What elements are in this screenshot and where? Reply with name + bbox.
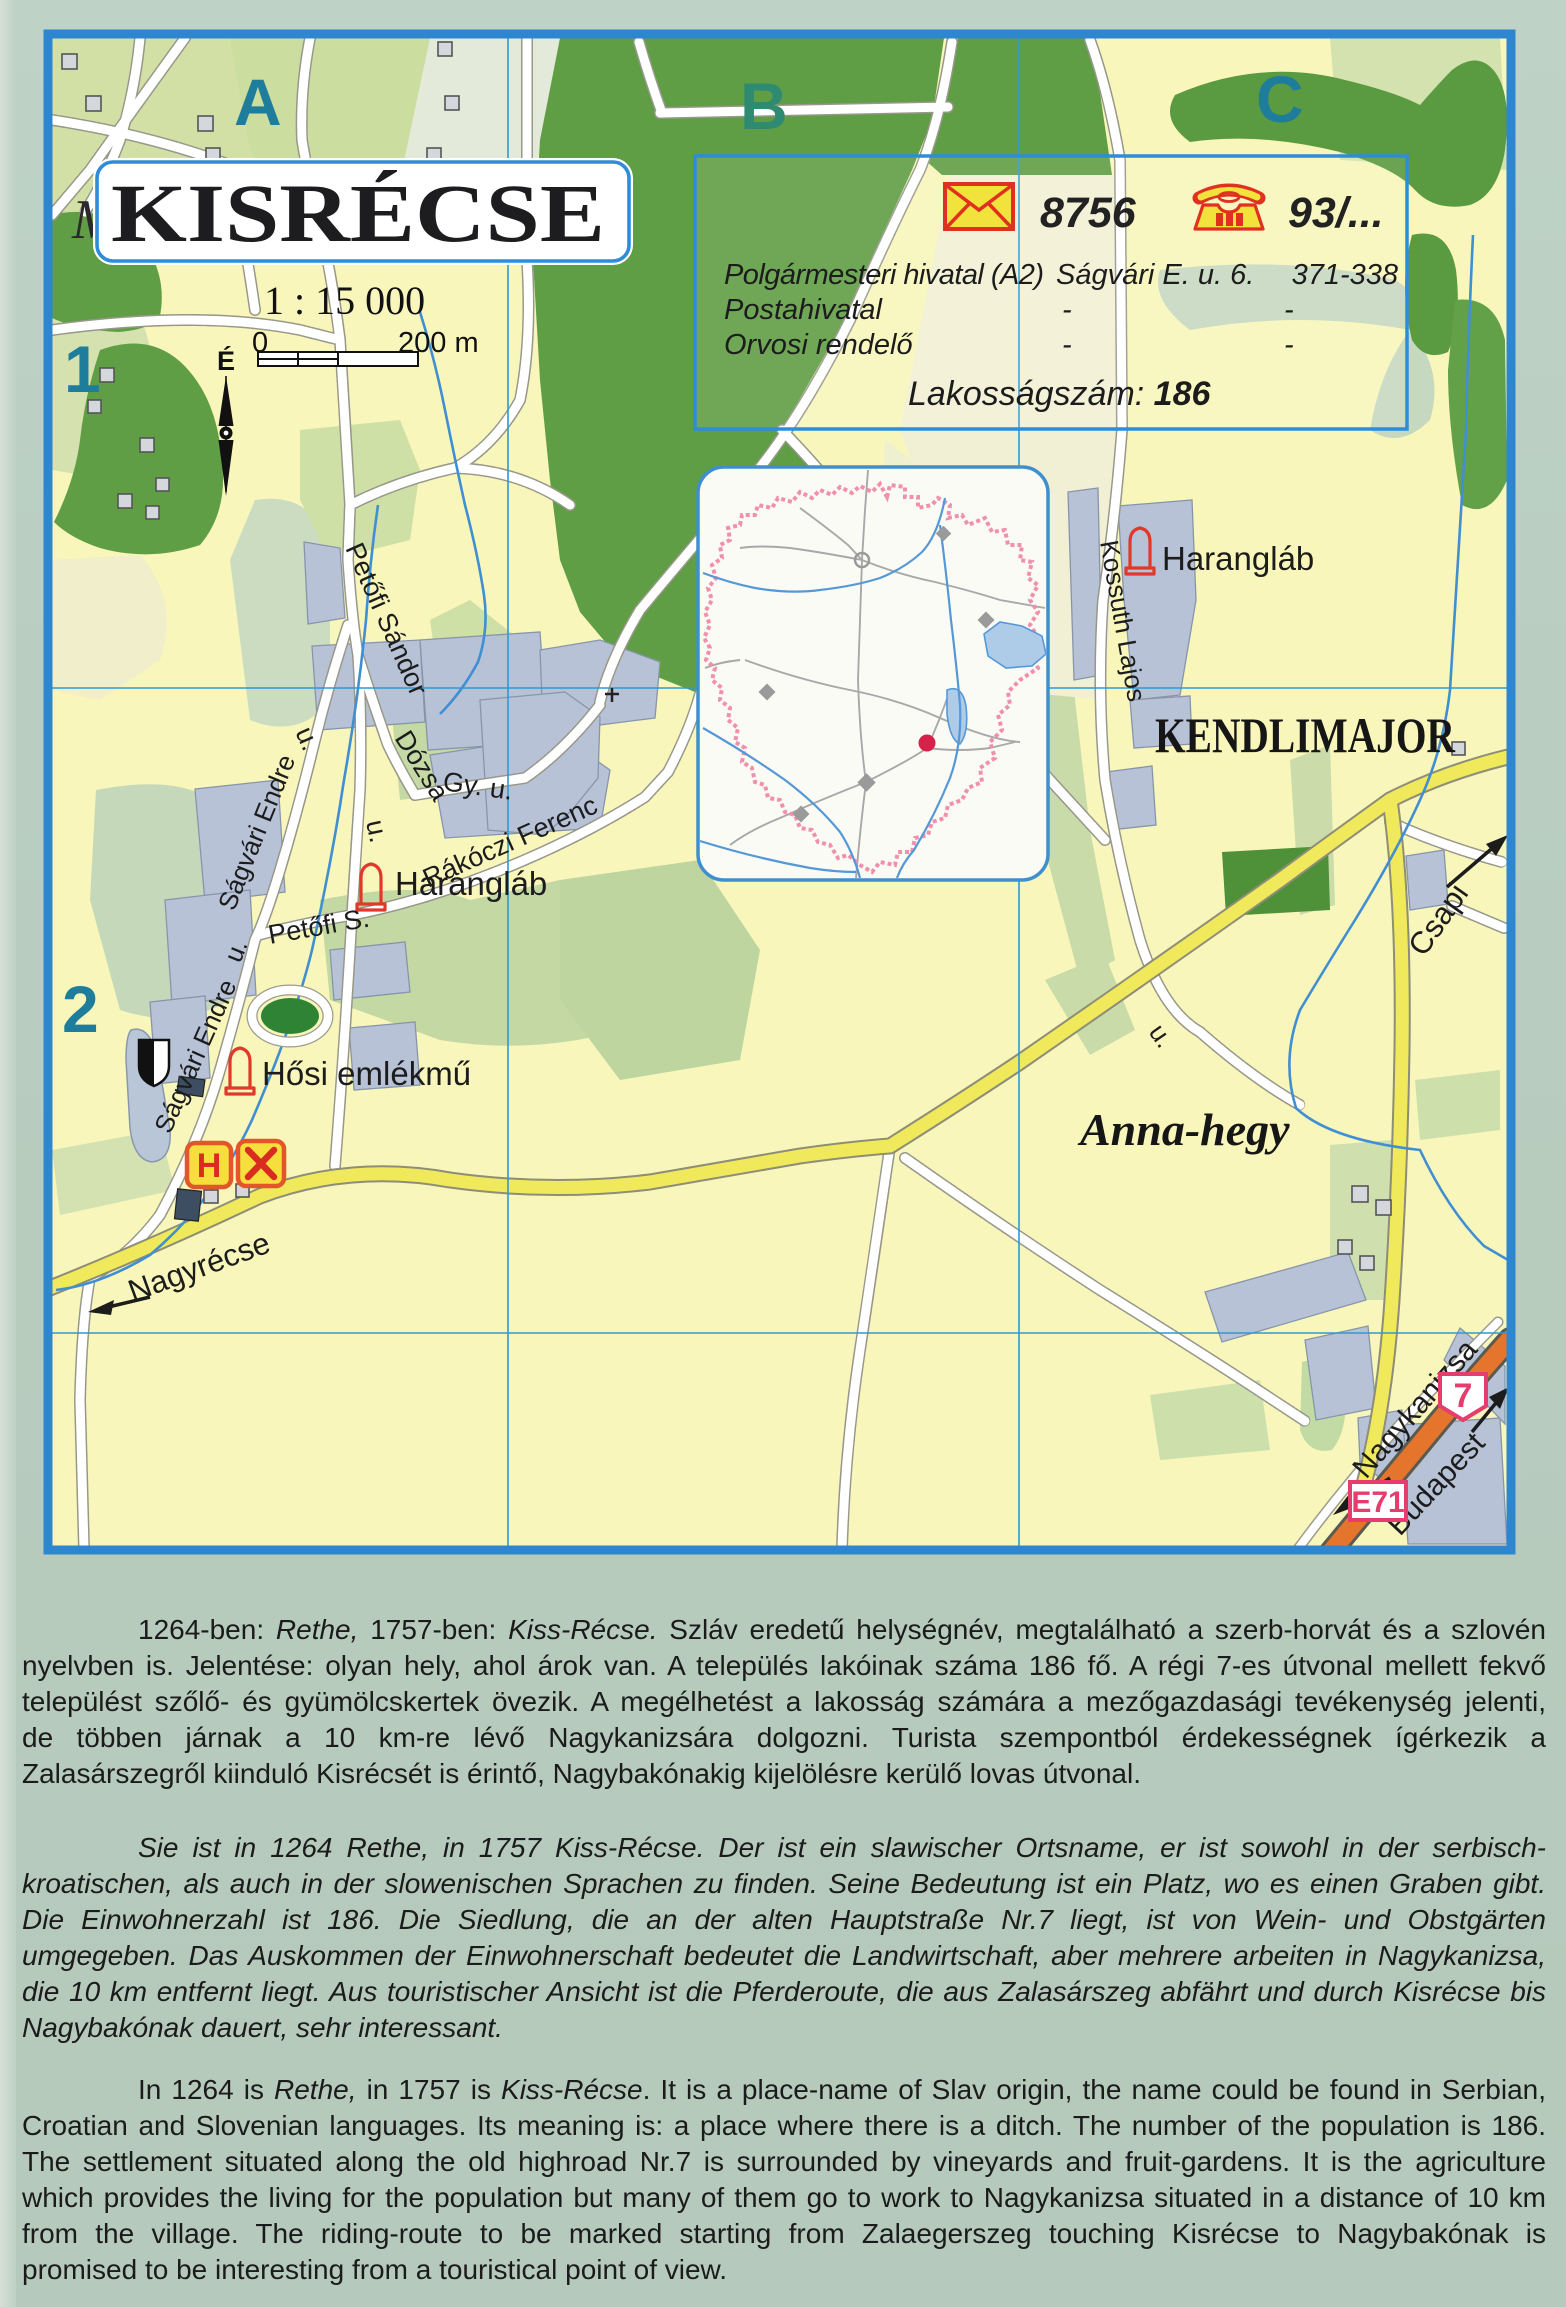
svg-text:A: A <box>234 65 282 139</box>
svg-text:2: 2 <box>62 972 99 1046</box>
svg-text:Ságvári E. u. 6.: Ságvári E. u. 6. <box>1056 259 1254 291</box>
svg-text:1: 1 <box>64 332 101 406</box>
svg-text:7: 7 <box>1454 1377 1473 1415</box>
svg-text:KENDLIMAJOR: KENDLIMAJOR <box>1155 707 1456 763</box>
svg-text:Orvosi rendelő: Orvosi rendelő <box>724 329 913 361</box>
svg-text:1 : 15 000: 1 : 15 000 <box>264 278 425 323</box>
svg-text:H: H <box>197 1147 222 1185</box>
svg-text:Harangláb: Harangláb <box>395 865 547 902</box>
svg-text:Lakosságszám: 186: Lakosságszám: 186 <box>908 375 1211 413</box>
svg-text:93/...: 93/... <box>1288 189 1384 237</box>
svg-text:-: - <box>1284 329 1294 361</box>
svg-text:KISRÉCSE: KISRÉCSE <box>111 167 605 259</box>
svg-text:C: C <box>1256 62 1304 136</box>
svg-text:-: - <box>1284 294 1294 326</box>
svg-text:Harangláb: Harangláb <box>1162 540 1314 577</box>
svg-text:Polgármesteri hivatal (A2): Polgármesteri hivatal (A2) <box>724 259 1044 291</box>
svg-text:-: - <box>1062 294 1072 326</box>
svg-text:Postahivatal: Postahivatal <box>724 294 884 326</box>
svg-text:Anna-hegy: Anna-hegy <box>1077 1104 1290 1155</box>
svg-text:E71: E71 <box>1351 1486 1404 1519</box>
svg-text:B: B <box>740 69 788 143</box>
svg-text:371-338: 371-338 <box>1292 259 1398 291</box>
svg-text:É: É <box>217 345 235 376</box>
svg-text:8756: 8756 <box>1040 189 1137 237</box>
svg-text:200 m: 200 m <box>398 327 479 359</box>
svg-text:Hősi emlékmű: Hősi emlékmű <box>262 1055 471 1092</box>
svg-text:-: - <box>1062 329 1072 361</box>
svg-text:0: 0 <box>252 327 268 359</box>
